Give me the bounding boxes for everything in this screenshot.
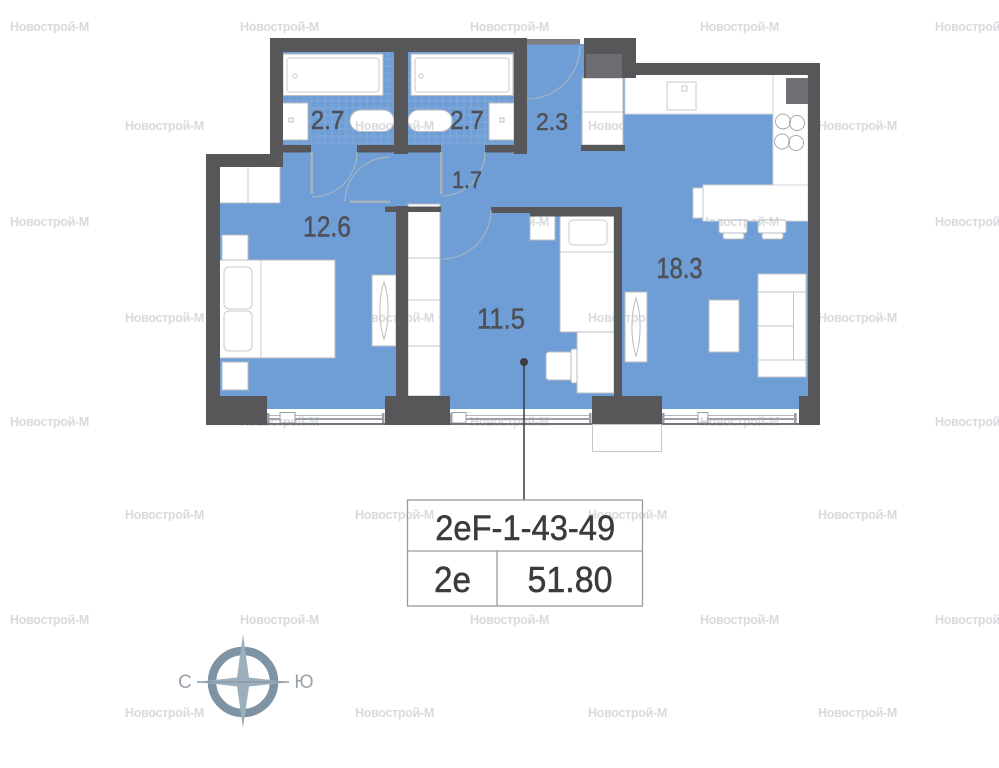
- svg-text:2e: 2e: [434, 559, 471, 600]
- svg-text:1.7: 1.7: [452, 167, 482, 194]
- svg-text:Ю: Ю: [294, 672, 313, 693]
- svg-text:51.80: 51.80: [528, 559, 613, 600]
- svg-text:С: С: [178, 672, 192, 693]
- svg-text:11.5: 11.5: [477, 304, 525, 336]
- svg-text:18.3: 18.3: [657, 253, 703, 285]
- svg-text:2.3: 2.3: [536, 109, 568, 136]
- svg-text:2.7: 2.7: [311, 105, 345, 135]
- svg-text:2.7: 2.7: [450, 105, 484, 135]
